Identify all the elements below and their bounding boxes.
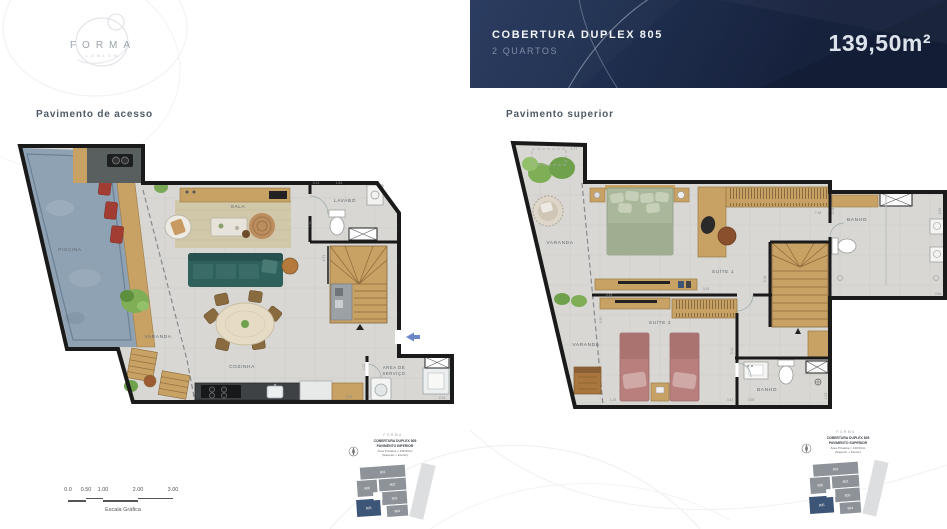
room-label-varanda-top: VARANDA <box>546 240 573 246</box>
cooktop <box>201 385 241 398</box>
dim-label: 1.84 <box>336 181 343 185</box>
kitchen-counter <box>195 383 300 400</box>
hall-cabinet <box>808 331 830 357</box>
keyplan-line2: PAVIMENTO SUPERIOR <box>812 441 884 445</box>
lounge-chair <box>718 227 736 245</box>
room-label-piscina: PISCINA <box>58 247 82 253</box>
dim-label: 1.19 <box>610 398 617 402</box>
unit-number: 806 <box>364 486 370 490</box>
grill-icon <box>107 154 133 167</box>
unit-blocks: 801 806 802 803 805 804 <box>806 461 862 517</box>
pouf <box>144 375 156 387</box>
keyplan-map: 801 806 802 803 805 804 <box>798 458 894 522</box>
shaft <box>349 228 377 240</box>
dim-label: 3.04 <box>346 395 353 399</box>
unit-blocks: 801 806 802 803 805 804 <box>353 464 409 520</box>
dim-label: 3.19 <box>703 287 710 291</box>
section-label-superior: Pavimento superior <box>506 109 614 120</box>
logo-subtitle: LEBLON <box>48 53 158 58</box>
varanda-bench <box>574 367 601 394</box>
room-label-suite2: SUÍTE 2 <box>649 319 671 326</box>
entry-arrow-icon <box>406 333 420 342</box>
dim-label: 2.59 <box>748 398 755 402</box>
scale-tick: 2.00 <box>130 487 146 493</box>
unit-number-highlight: 805 <box>819 503 825 507</box>
room-label-sala: SALA <box>231 204 246 210</box>
dim-label: 1.22 <box>362 364 366 371</box>
compass-icon <box>801 443 812 454</box>
scale-label: Escala Gráfica <box>58 507 188 513</box>
sideboard <box>180 188 290 202</box>
unit-number: 803 <box>392 496 398 500</box>
toilet <box>330 217 344 235</box>
unit-number: 804 <box>847 506 853 510</box>
unit-title: COBERTURA DUPLEX 805 <box>492 29 663 41</box>
dim-label: 2.24 <box>439 396 446 400</box>
tv-console-suite-2 <box>600 298 670 309</box>
dim-label: 2.04 <box>831 208 835 215</box>
floorplan-access: PISCINA VARANDA SALA LAVABO COZINHA AREA… <box>15 138 460 418</box>
unit-number-highlight: 805 <box>366 506 372 510</box>
unit-subtitle: 2 QUARTOS <box>492 46 558 56</box>
scale-tick: 0.0 <box>60 487 76 493</box>
keyplan-brand: FORMA <box>345 433 441 437</box>
bbq-area <box>73 146 143 183</box>
logo: FORMA LEBLON <box>48 12 158 82</box>
scale-tick: 0.50 <box>78 487 94 493</box>
bed-suite-2-a <box>620 333 649 401</box>
keyplan-inferior: FORMA COBERTURA DUPLEX 805 PAVIMENTO INF… <box>345 433 441 527</box>
dim-label: 1.50 <box>309 221 313 228</box>
floorplan-sheet: FORMA LEBLON COBERTURA DUPLEX 805 2 QUAR… <box>0 0 947 529</box>
room-label-banho-top: BANHO <box>847 217 867 223</box>
bed-suite-1 <box>605 185 675 255</box>
stairs <box>772 243 828 334</box>
bed-suite-2-b <box>670 333 699 401</box>
room-label-varanda: VARANDA <box>144 334 171 340</box>
nest-chair <box>533 196 563 226</box>
scale-tick: 1.00 <box>95 487 111 493</box>
unit-number: 802 <box>390 482 396 486</box>
unit-number: 804 <box>394 509 400 513</box>
dim-label: 4.15 <box>606 293 613 297</box>
toilet <box>779 366 793 384</box>
toilet <box>838 239 856 253</box>
sink <box>930 219 944 234</box>
unit-number: 803 <box>845 493 851 497</box>
unit-number: 802 <box>843 479 849 483</box>
dim-label: 3.18 <box>763 276 767 283</box>
tv-console-suite-1 <box>595 279 697 290</box>
dim-label: 1.23 <box>824 393 828 400</box>
dim-label: 3.42 <box>727 398 734 402</box>
compass-icon <box>348 446 359 457</box>
wardrobe-suite-1 <box>726 187 830 207</box>
dim-label: 2.64 <box>935 292 942 296</box>
unit-number: 801 <box>833 467 839 471</box>
room-label-servico-1: AREA DE <box>383 365 405 370</box>
side-table <box>282 258 298 274</box>
keyplan-line2: PAVIMENTO INFERIOR <box>359 444 431 448</box>
street-band <box>862 459 889 517</box>
room-label-banho-bottom: BANHO <box>757 387 777 393</box>
keyplan-superior: FORMA COBERTURA DUPLEX 805 PAVIMENTO SUP… <box>798 430 894 524</box>
unit-area: 139,50m² <box>829 30 931 57</box>
section-label-access: Pavimento de acesso <box>36 109 153 120</box>
keyplan-line4: (Superior + Inferior) <box>359 453 431 457</box>
room-label-lavabo: LAVABO <box>334 198 356 204</box>
logo-name: FORMA <box>48 40 158 51</box>
stairs <box>330 246 387 330</box>
keyplan-line4: (Superior + Inferior) <box>812 450 884 454</box>
logo-rings-icon <box>60 8 146 70</box>
unit-number: 801 <box>380 470 386 474</box>
dim-label: 3.12 <box>730 348 734 355</box>
unit-number: 806 <box>817 483 823 487</box>
room-label-servico-2: SERVIÇO <box>383 371 406 376</box>
keyplan-brand: FORMA <box>798 430 894 434</box>
room-label-cozinha: COZINHA <box>229 364 255 370</box>
dim-label: 1.77 <box>571 147 578 151</box>
wardrobe-suite-2 <box>672 299 737 318</box>
sofa <box>188 253 283 287</box>
fridge <box>300 381 332 400</box>
dim-label: 5.13 <box>313 181 320 185</box>
dim-label: 7.18 <box>815 211 822 215</box>
armchair <box>165 215 191 239</box>
sink <box>930 247 944 262</box>
unit-header-bar: COBERTURA DUPLEX 805 2 QUARTOS 139,50m² <box>470 0 947 88</box>
street-band <box>409 462 436 520</box>
coffee-table <box>211 218 247 236</box>
scale-bar: 0.0 0.50 1.00 2.00 3.00 Escala Gráfica <box>58 483 198 523</box>
dim-label: 2.62 <box>938 208 942 215</box>
keyplan-map: 801 806 802 803 805 804 <box>345 461 441 525</box>
scale-tick: 3.00 <box>165 487 181 493</box>
dining-table <box>216 303 274 345</box>
floorplan-superior: VARANDA VARANDA SUÍTE 1 SUÍTE 2 BANHO BA… <box>510 135 947 427</box>
entry-door-gap <box>395 330 403 344</box>
dim-label: 3.20 <box>599 317 603 324</box>
kitchen-sink <box>267 386 283 398</box>
room-label-suite1: SUÍTE 1 <box>712 268 734 275</box>
room-label-varanda-bottom: VARANDA <box>572 342 599 348</box>
dim-label: 4.73 <box>322 255 326 262</box>
nightstand-suite-2 <box>651 383 669 401</box>
